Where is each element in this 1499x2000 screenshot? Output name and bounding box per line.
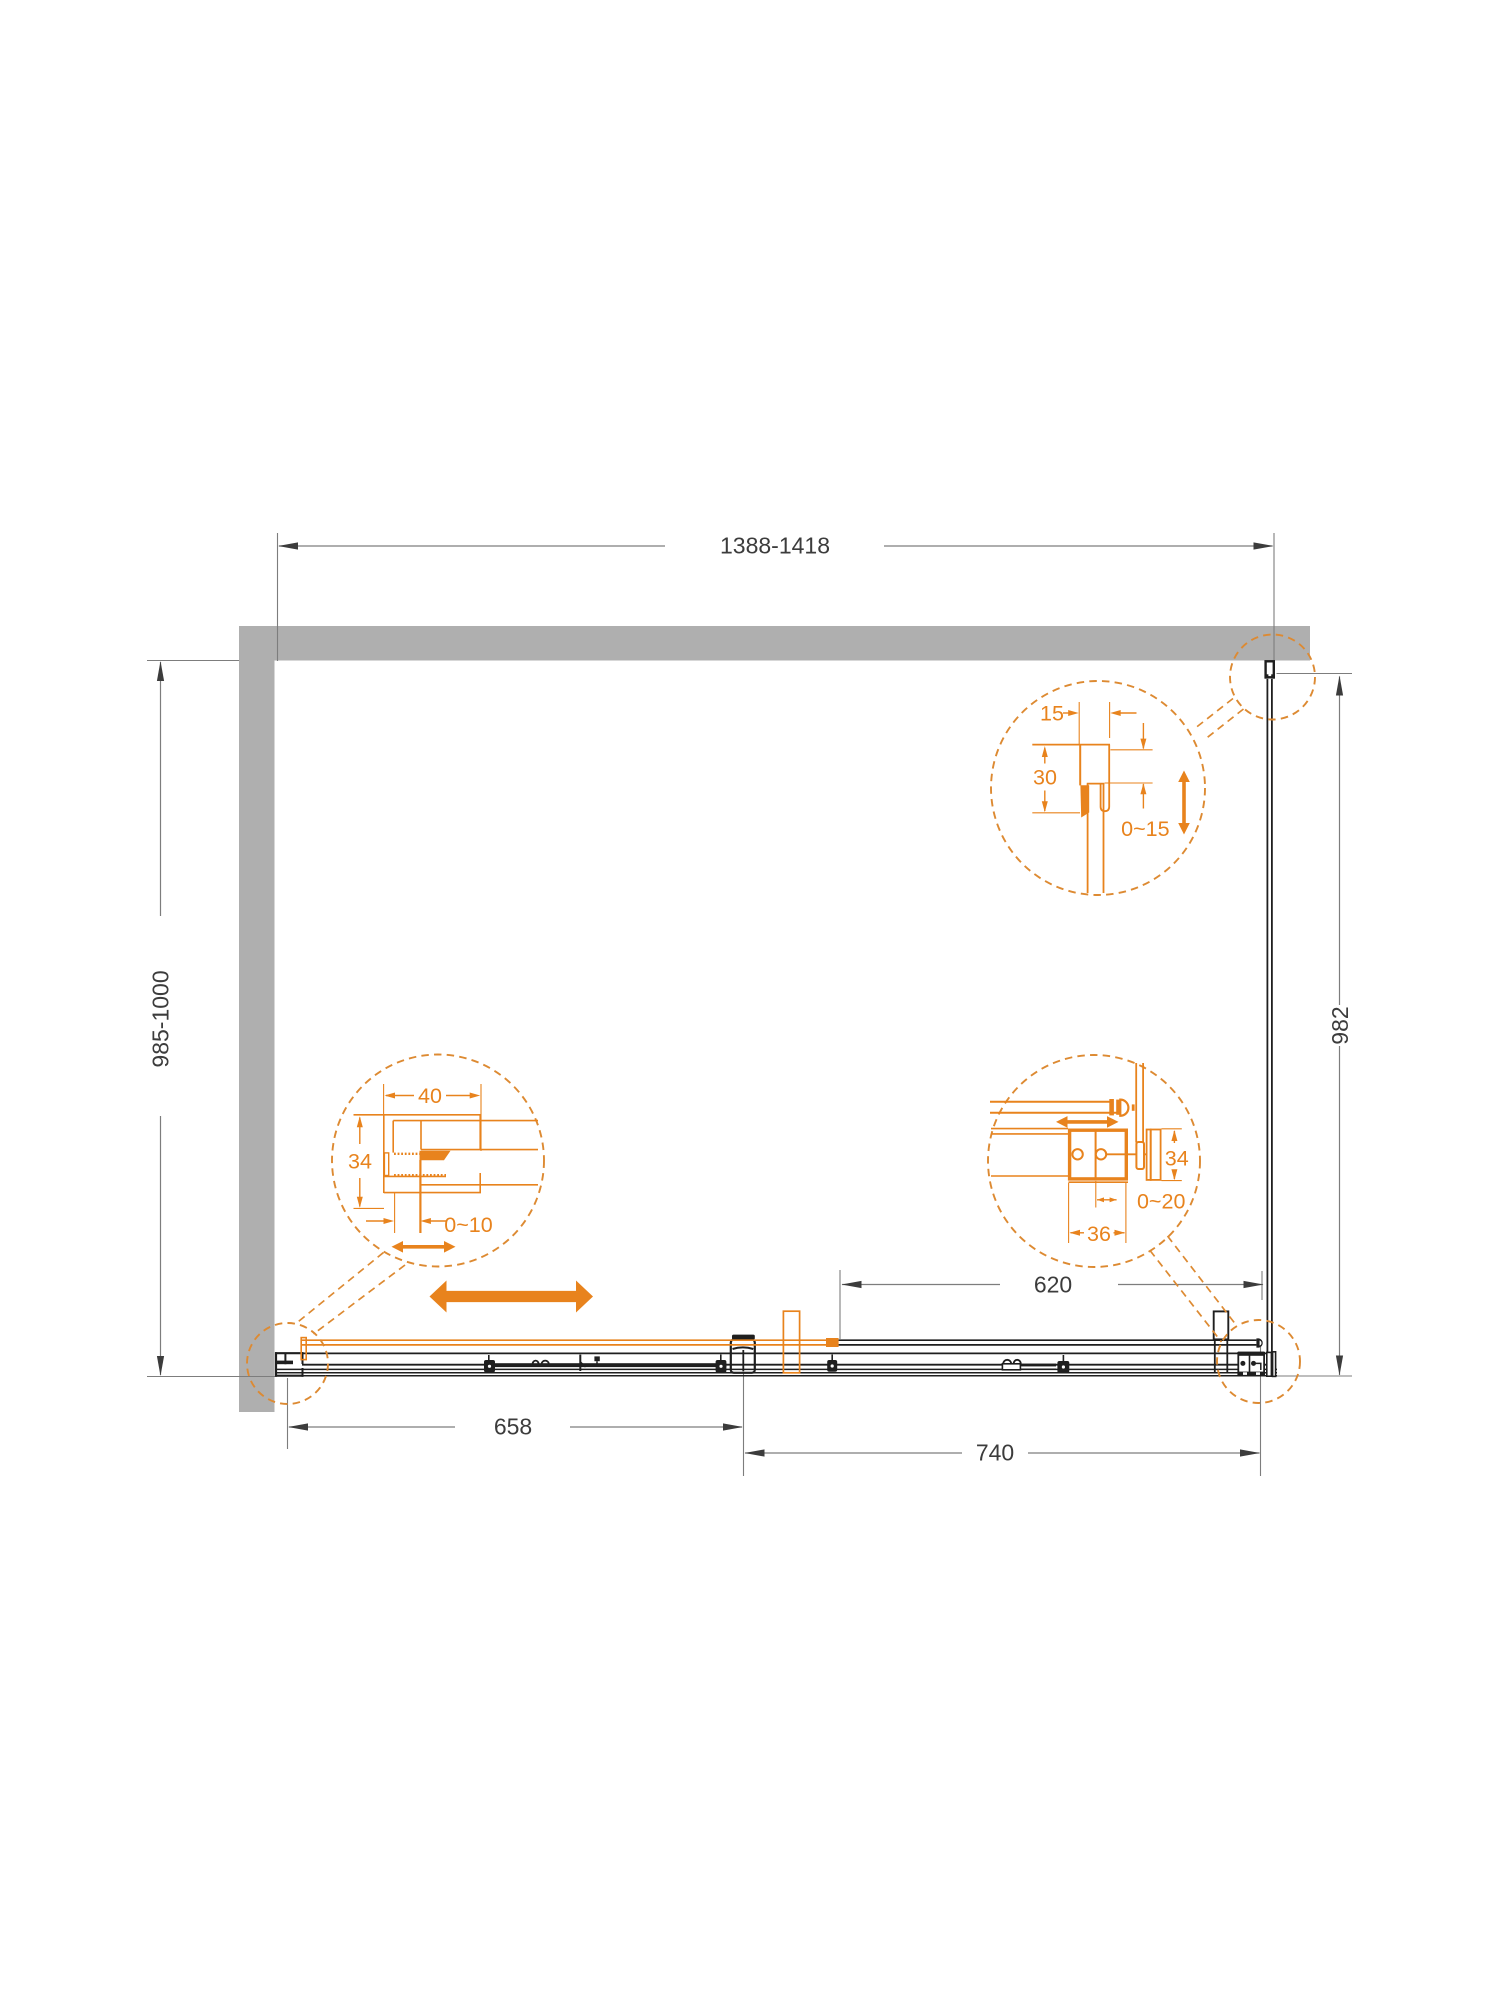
svg-text:982: 982 [1327, 1006, 1353, 1044]
svg-text:0~10: 0~10 [444, 1213, 492, 1237]
svg-text:620: 620 [1034, 1272, 1072, 1298]
svg-text:30: 30 [1033, 766, 1057, 790]
svg-text:36: 36 [1087, 1222, 1111, 1246]
svg-text:1388-1418: 1388-1418 [720, 533, 830, 559]
svg-text:15: 15 [1040, 702, 1064, 726]
svg-text:0~15: 0~15 [1121, 817, 1169, 841]
svg-text:40: 40 [418, 1084, 442, 1108]
svg-text:658: 658 [494, 1414, 532, 1440]
svg-text:0~20: 0~20 [1137, 1190, 1185, 1214]
svg-text:740: 740 [976, 1440, 1014, 1466]
svg-text:985-1000: 985-1000 [148, 970, 174, 1067]
svg-text:34: 34 [1165, 1146, 1189, 1170]
svg-text:34: 34 [348, 1149, 372, 1173]
